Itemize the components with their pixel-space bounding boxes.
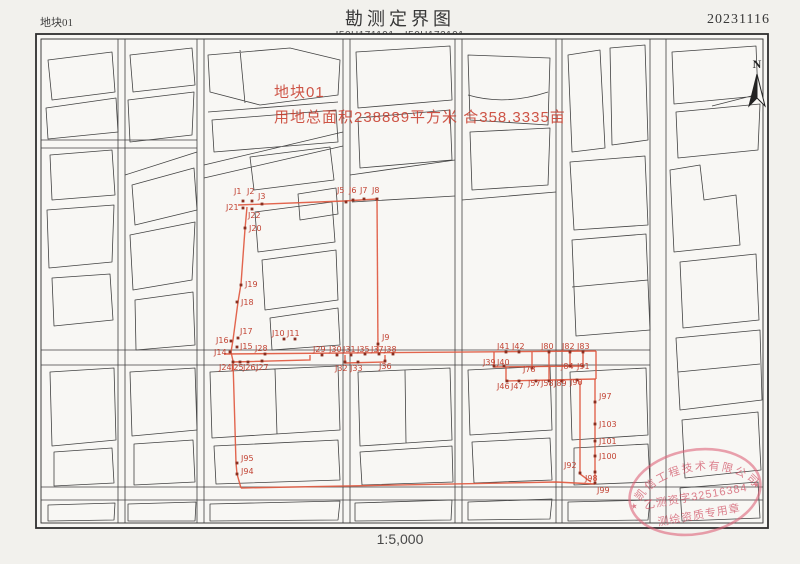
survey-point-dot — [594, 455, 597, 458]
survey-point-label: J36 — [378, 362, 392, 371]
survey-point-label: J1 — [233, 187, 241, 196]
survey-point-label: J38 — [383, 345, 397, 354]
survey-point-label: J24 — [218, 363, 232, 372]
survey-point-label: J97 — [598, 392, 612, 401]
survey-point-label: J7 — [359, 186, 367, 195]
survey-point-label: J47 — [510, 382, 524, 391]
survey-point-label: J42 — [511, 342, 525, 351]
survey-point-label: J27 — [255, 363, 269, 372]
survey-point-label: J41 — [496, 342, 510, 351]
survey-point-dot — [264, 353, 267, 356]
survey-point-label: J83 — [576, 342, 590, 351]
survey-point-label: J100 — [598, 452, 617, 461]
survey-point-dot — [594, 440, 597, 443]
survey-point-label: J39 — [482, 358, 496, 367]
survey-point-label: J6 — [348, 186, 356, 195]
survey-point-label: J16 — [215, 336, 229, 345]
survey-point-label: J32 — [334, 364, 348, 373]
survey-point-label: J18 — [240, 298, 254, 307]
boundary-line — [377, 199, 378, 352]
survey-point-dot — [261, 203, 264, 206]
survey-point-label: J25 — [230, 363, 244, 372]
survey-point-label: J57 — [527, 379, 541, 388]
survey-point-dot — [251, 200, 254, 203]
survey-point-dot — [261, 360, 264, 363]
survey-point-label: J33 — [349, 364, 363, 373]
survey-point-label: J84 — [560, 362, 574, 371]
survey-point-dot — [582, 351, 585, 354]
survey-point-label: J99 — [596, 486, 610, 495]
survey-point-label: J58 — [540, 379, 554, 388]
survey-point-dot — [594, 471, 597, 474]
survey-point-label: J89 — [553, 379, 567, 388]
survey-point-label: J91 — [576, 362, 590, 371]
survey-point-dot — [236, 301, 239, 304]
survey-point-dot — [594, 482, 597, 485]
survey-point-dot — [518, 351, 521, 354]
survey-point-dot — [294, 338, 297, 341]
survey-point-dot — [594, 401, 597, 404]
survey-point-label: J20 — [248, 224, 262, 233]
survey-point-label: J78 — [522, 365, 536, 374]
scale-label: 1:5,000 — [0, 531, 800, 547]
survey-point-dot — [594, 423, 597, 426]
stamp-star-left-icon: ★ — [630, 501, 640, 511]
survey-point-dot — [350, 354, 353, 357]
survey-point-dot — [251, 208, 254, 211]
survey-point-dot — [236, 473, 239, 476]
survey-point-label: J28 — [254, 344, 268, 353]
survey-point-dot — [376, 198, 379, 201]
north-label: N — [753, 57, 762, 71]
survey-point-dot — [283, 338, 286, 341]
survey-point-dot — [505, 351, 508, 354]
survey-point-dot — [357, 361, 360, 364]
stamp-star-right-icon: ★ — [752, 480, 762, 490]
survey-point-dot — [242, 200, 245, 203]
survey-point-label: J14 — [213, 348, 227, 357]
survey-point-dot — [548, 351, 551, 354]
survey-point-label: J29 — [312, 345, 326, 354]
survey-point-label: J95 — [240, 454, 254, 463]
survey-point-dot — [579, 472, 582, 475]
survey-point-dot — [237, 337, 240, 340]
survey-point-label: J90 — [569, 378, 583, 387]
survey-point-dot — [344, 361, 347, 364]
survey-point-label: J10 — [271, 329, 285, 338]
survey-demarcation-sheet: 地块01 勘测定界图 I50H171191、I50H172191 2023111… — [0, 0, 800, 564]
survey-point-dot — [345, 201, 348, 204]
survey-point-dot — [244, 227, 247, 230]
survey-point-label: J40 — [496, 358, 510, 367]
survey-point-label: J82 — [561, 342, 575, 351]
survey-point-label: J19 — [244, 280, 258, 289]
survey-point-label: J103 — [598, 420, 617, 429]
survey-point-label: J31 — [342, 345, 356, 354]
survey-point-label: J101 — [598, 437, 617, 446]
survey-point-dot — [229, 351, 232, 354]
survey-point-label: J17 — [239, 327, 253, 336]
survey-point-dot — [240, 284, 243, 287]
survey-point-label: J3 — [257, 192, 265, 201]
survey-point-dot — [336, 354, 339, 357]
survey-point-label: J30 — [328, 345, 342, 354]
survey-point-label: J15 — [239, 342, 253, 351]
survey-point-label: J5 — [336, 186, 344, 195]
survey-point-dot — [242, 207, 245, 210]
survey-point-label: J94 — [240, 467, 254, 476]
survey-point-label: J35 — [356, 345, 370, 354]
area-annotation: 地块01 用地总面积238889平方米 合358.3335亩 — [274, 80, 566, 130]
survey-point-label: J22 — [247, 211, 261, 220]
survey-point-dot — [236, 462, 239, 465]
survey-point-label: J2 — [246, 187, 254, 196]
survey-point-label: J92 — [563, 461, 577, 470]
annotation-plot-line: 地块01 — [274, 80, 566, 105]
survey-point-dot — [569, 351, 572, 354]
survey-point-label: J37 — [370, 345, 384, 354]
annotation-area-line: 用地总面积238889平方米 合358.3335亩 — [274, 105, 566, 130]
survey-point-dot — [230, 340, 233, 343]
survey-point-label: J46 — [496, 382, 510, 391]
survey-point-label: J11 — [286, 329, 300, 338]
survey-point-label: J8 — [371, 186, 379, 195]
survey-point-dot — [352, 199, 355, 202]
survey-point-label: J9 — [381, 333, 389, 342]
survey-point-label: J26 — [242, 363, 256, 372]
survey-point-dot — [236, 346, 239, 349]
survey-point-label: J21 — [225, 203, 239, 212]
survey-point-label: J80 — [540, 342, 554, 351]
survey-point-dot — [363, 198, 366, 201]
survey-point-dot — [321, 354, 324, 357]
